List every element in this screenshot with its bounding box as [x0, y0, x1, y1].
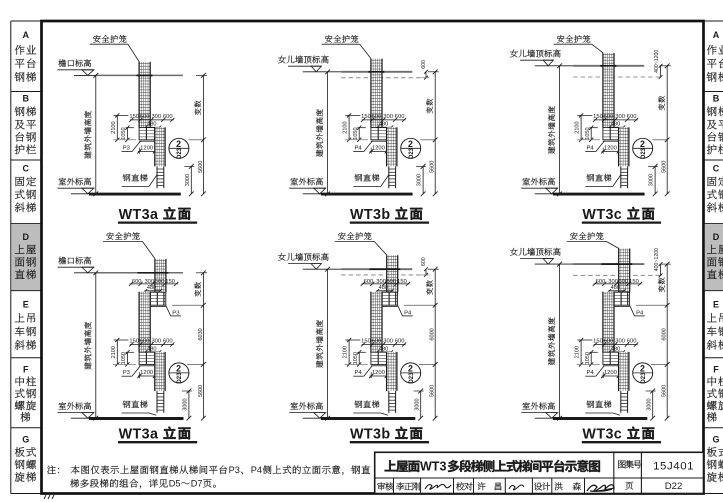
svg-text:WT3a: WT3a: [119, 427, 159, 443]
svg-text:2100: 2100: [111, 121, 117, 133]
svg-text:F: F: [713, 365, 719, 375]
svg-text:2100: 2100: [111, 346, 117, 358]
svg-text:480: 480: [379, 122, 388, 128]
svg-text:P3: P3: [123, 146, 131, 152]
svg-text:P4: P4: [251, 465, 262, 475]
svg-text:P3: P3: [123, 370, 131, 376]
svg-text:2100: 2100: [575, 346, 581, 358]
svg-text:B: B: [713, 94, 720, 104]
svg-text:D23: D23: [641, 147, 647, 159]
svg-text:1200: 1200: [372, 146, 385, 152]
svg-text:150: 150: [593, 339, 603, 345]
svg-text:480: 480: [147, 346, 156, 352]
svg-text:3000: 3000: [185, 174, 191, 186]
svg-text:480: 480: [611, 122, 620, 128]
svg-text:480: 480: [379, 346, 388, 352]
svg-text:WT3c: WT3c: [582, 207, 622, 223]
svg-text:1050: 1050: [121, 352, 127, 364]
svg-text:2: 2: [176, 139, 181, 149]
svg-text:1200: 1200: [372, 370, 385, 376]
svg-text:1050: 1050: [353, 352, 359, 364]
svg-text:400~1200: 400~1200: [654, 50, 660, 73]
svg-text:1200: 1200: [140, 146, 153, 152]
svg-text:300: 300: [383, 114, 393, 120]
svg-text:2100: 2100: [343, 121, 349, 133]
svg-text:600: 600: [421, 257, 427, 266]
svg-text:480: 480: [611, 346, 620, 352]
svg-text:300: 300: [615, 114, 625, 120]
svg-text:WT3a: WT3a: [119, 207, 159, 223]
svg-text:P4: P4: [354, 370, 362, 376]
svg-text:150: 150: [129, 114, 139, 120]
svg-text:480: 480: [611, 285, 620, 291]
svg-text:P4: P4: [586, 370, 594, 376]
svg-text:G: G: [22, 435, 29, 445]
svg-text:300: 300: [151, 339, 161, 345]
svg-text:150: 150: [593, 114, 603, 120]
svg-text:F: F: [23, 365, 29, 375]
svg-text:2100: 2100: [575, 121, 581, 133]
svg-text:5600: 5600: [662, 161, 668, 173]
svg-text:D7: D7: [191, 479, 203, 489]
svg-text:C: C: [713, 164, 720, 174]
svg-text:2: 2: [640, 363, 645, 373]
svg-text:5600: 5600: [198, 161, 204, 173]
svg-text:300: 300: [615, 339, 625, 345]
svg-text:2: 2: [176, 363, 181, 373]
svg-text:300: 300: [151, 114, 161, 120]
svg-text:5600: 5600: [430, 161, 436, 173]
svg-text:WT3b: WT3b: [350, 427, 391, 443]
svg-text:D: D: [23, 232, 30, 242]
svg-text:D: D: [713, 232, 720, 242]
svg-text:480: 480: [379, 285, 388, 291]
svg-text:G: G: [712, 435, 719, 445]
svg-text:5600: 5600: [662, 385, 668, 397]
svg-text:A: A: [713, 30, 720, 40]
svg-text:2100: 2100: [343, 346, 349, 358]
svg-text:480: 480: [147, 285, 156, 291]
svg-text:2: 2: [640, 139, 645, 149]
svg-text:E: E: [23, 300, 29, 310]
svg-text:1050: 1050: [585, 127, 591, 139]
svg-text:D23: D23: [641, 372, 647, 384]
svg-text:D23: D23: [409, 147, 415, 159]
svg-text:1050: 1050: [585, 352, 591, 364]
svg-text:3000: 3000: [183, 398, 189, 410]
svg-text:P3: P3: [229, 465, 240, 475]
svg-text:300: 300: [383, 339, 393, 345]
svg-text:P4: P4: [586, 146, 594, 152]
svg-text:P3: P3: [172, 310, 180, 316]
svg-text:400~1200: 400~1200: [654, 248, 660, 271]
svg-text:5600: 5600: [198, 385, 204, 397]
svg-text:B: B: [23, 94, 30, 104]
svg-text:WT3b: WT3b: [350, 207, 391, 223]
svg-text:D23: D23: [177, 147, 183, 159]
svg-text:1200: 1200: [604, 370, 617, 376]
svg-text:P4: P4: [404, 310, 412, 316]
svg-text:1200: 1200: [140, 370, 153, 376]
svg-text:D23: D23: [177, 372, 183, 384]
svg-text:2: 2: [408, 139, 413, 149]
svg-text:P4: P4: [354, 146, 362, 152]
svg-text:A: A: [23, 30, 30, 40]
svg-text:1050: 1050: [121, 127, 127, 139]
svg-text:2: 2: [408, 363, 413, 373]
svg-text:3000: 3000: [414, 398, 420, 410]
svg-text:3000: 3000: [646, 398, 652, 410]
svg-text:D23: D23: [409, 372, 415, 384]
svg-text:3000: 3000: [649, 174, 655, 186]
svg-text:D22: D22: [665, 481, 683, 492]
svg-text:150: 150: [361, 339, 371, 345]
svg-text:1050: 1050: [353, 127, 359, 139]
svg-text:WT3c: WT3c: [582, 427, 622, 443]
svg-text:1200: 1200: [604, 146, 617, 152]
svg-text:E: E: [713, 300, 719, 310]
svg-text:480: 480: [147, 122, 156, 128]
svg-text:6000: 6000: [430, 328, 436, 340]
svg-text:150: 150: [361, 114, 371, 120]
svg-text:P4: P4: [636, 310, 644, 316]
svg-text:6030: 6030: [198, 328, 204, 340]
svg-text:15J401: 15J401: [653, 460, 694, 472]
svg-text:WT3: WT3: [420, 460, 446, 474]
svg-text:150: 150: [129, 339, 139, 345]
svg-text:6000: 6000: [662, 328, 668, 340]
svg-text:3000: 3000: [417, 174, 423, 186]
svg-text:D5: D5: [169, 479, 181, 489]
svg-text:C: C: [23, 164, 30, 174]
svg-text:600: 600: [421, 60, 427, 69]
svg-text:5600: 5600: [430, 385, 436, 397]
